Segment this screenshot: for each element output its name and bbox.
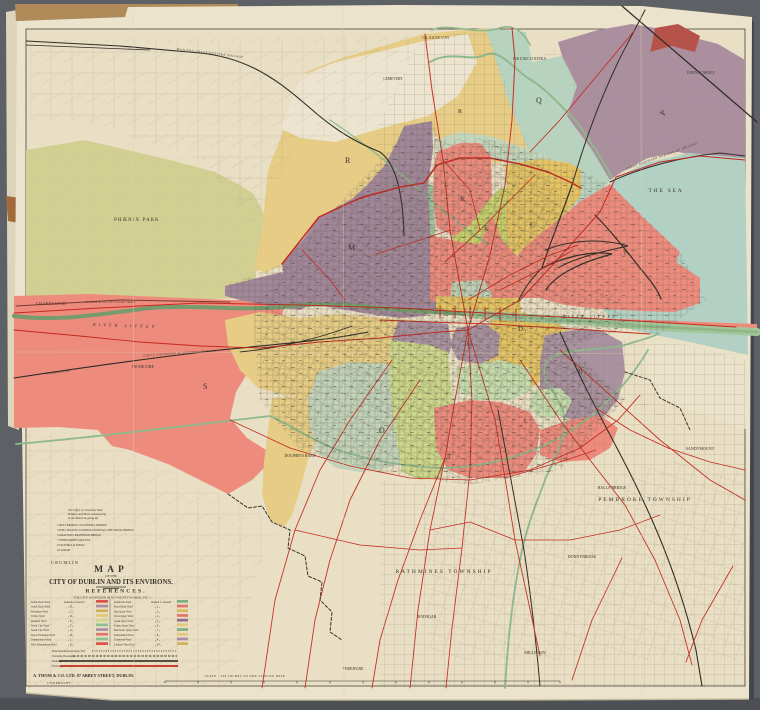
svg-text:Kilmainham Ward: Kilmainham Ward	[114, 634, 134, 637]
svg-text:Ushers Quay Ward: Ushers Quay Ward	[114, 625, 135, 628]
svg-text:„ 4 „: „ 4 „	[155, 615, 161, 618]
svg-text:7 WHITWORTH 8 QUE: 7 WHITWORTH 8 QUEENS	[57, 539, 91, 542]
svg-text:DUBLIN & LUCAN STEAM TRAM: DUBLIN & LUCAN STEAM TRAM	[84, 301, 135, 304]
svg-text:Township Boundaries: Township Boundaries	[52, 655, 75, 658]
svg-text:„ H „: „ H „	[68, 634, 74, 637]
svg-text:MILLTOWN: MILLTOWN	[524, 650, 545, 655]
svg-text:Fitzwilliam Ward: Fitzwilliam Ward	[114, 606, 133, 609]
svg-text:SCALE - SIX INCHES TO ONE: SCALE - SIX INCHES TO ONE STATUTE MILE	[205, 674, 286, 678]
svg-text:CEMETERY: CEMETERY	[383, 77, 403, 81]
svg-text:„ F „: „ F „	[68, 625, 74, 628]
svg-text:R: R	[458, 109, 462, 115]
svg-text:Royal Exchange Ward: Royal Exchange Ward	[31, 634, 56, 637]
svg-text:R: R	[345, 156, 351, 165]
svg-text:marked A coloured: marked A coloured	[64, 601, 85, 604]
svg-text:OF THE: OF THE	[105, 574, 117, 578]
svg-text:„ 5 „: „ 5 „	[155, 620, 161, 623]
svg-text:„ 2 „: „ 2 „	[155, 606, 161, 609]
svg-text:RATHMINES TOWNSHIP: RATHMINES TOWNSHIP	[395, 569, 492, 575]
svg-text:REFERENCES.: REFERENCES.	[85, 589, 146, 595]
svg-text:THE SEA: THE SEA	[648, 188, 683, 194]
svg-text:TERENURE: TERENURE	[343, 666, 364, 671]
svg-text:„ D „: „ D „	[68, 615, 74, 618]
svg-text:CITY OF DUBLIN AND ITS ENVIRON: CITY OF DUBLIN AND ITS ENVIRONS.	[49, 579, 173, 586]
svg-text:A. THOM & CO. LTD. 87 ABBEY ST: A. THOM & CO. LTD. 87 ABBEY STREET, DUBL…	[33, 673, 134, 678]
svg-text:1 BUTT BRIDGE 2 O'C: 1 BUTT BRIDGE 2 O'CONNELL BRIDGE	[57, 524, 107, 527]
svg-text:B: B	[578, 368, 583, 376]
svg-text:„ I „: „ I „	[68, 639, 73, 642]
svg-text:Main Residential portion (Viz): Main Residential portion (Viz)	[52, 650, 85, 653]
svg-text:PEMBROKE TOWNSHIP: PEMBROKE TOWNSHIP	[598, 497, 692, 503]
svg-text:North Dock Ward: North Dock Ward	[31, 601, 51, 604]
svg-text:Merchants Quay Ward: Merchants Quay Ward	[114, 629, 139, 632]
svg-text:GLASNEVIN: GLASNEVIN	[422, 35, 449, 40]
svg-text:„ B „: „ B „	[68, 606, 74, 609]
svg-text:RATHGAR: RATHGAR	[418, 614, 437, 619]
svg-text:marked 1 coloured: marked 1 coloured	[151, 601, 172, 604]
svg-text:BALLS BRIDGE: BALLS BRIDGE	[598, 485, 627, 490]
svg-text:Glasnevin Ward: Glasnevin Ward	[114, 639, 132, 642]
svg-text:SANDYMOUNT: SANDYMOUNT	[686, 446, 715, 451]
svg-text:Trinity Ward: Trinity Ward	[31, 615, 45, 618]
svg-text:S: S	[203, 382, 207, 391]
svg-text:„ E „: „ E „	[68, 620, 74, 623]
svg-text:INCHICORE: INCHICORE	[132, 364, 154, 369]
svg-text:DRUMCONDRA: DRUMCONDRA	[513, 56, 547, 61]
svg-text:RIVER LIFFEY: RIVER LIFFEY	[562, 315, 617, 319]
svg-text:Arran Quay Ward: Arran Quay Ward	[114, 620, 134, 623]
svg-text:DONNYCARNEY: DONNYCARNEY	[687, 71, 715, 75]
svg-text:PHŒNIX PARK: PHŒNIX PARK	[114, 218, 160, 223]
svg-text:DOLPHIN'S BARN: DOLPHIN'S BARN	[285, 454, 316, 458]
svg-text:Q: Q	[536, 96, 542, 105]
svg-text:„ 7 „: „ 7 „	[155, 629, 161, 632]
svg-text:at the Mouth & going up:: at the Mouth & going up:	[68, 516, 99, 520]
svg-text:M: M	[348, 243, 355, 252]
svg-text:„ K „: „ K „	[68, 643, 74, 646]
svg-text:„ 6 „: „ 6 „	[155, 625, 161, 628]
svg-text:3 WELLINGTON 4 CON: 3 WELLINGTON 4 CONNOLLY(METAL) THE METAL…	[57, 529, 134, 532]
svg-text:Rotunda Ward: Rotunda Ward	[31, 620, 47, 623]
svg-text:„ 3 „: „ 3 „	[155, 610, 161, 613]
svg-text:North City Ward: North City Ward	[31, 625, 50, 628]
svg-text:CHAPELIZOD: CHAPELIZOD	[36, 301, 66, 306]
svg-text:Clontarf Ward East: Clontarf Ward East	[114, 643, 135, 646]
svg-text:CRUMLIN: CRUMLIN	[51, 560, 79, 565]
svg-text:D: D	[518, 325, 523, 333]
svg-text:South Dock Ward: South Dock Ward	[31, 606, 51, 609]
svg-text:Wood Quay Ward: Wood Quay Ward	[114, 615, 134, 618]
svg-text:T: T	[447, 453, 452, 461]
svg-text:DONNYBROOK: DONNYBROOK	[568, 554, 597, 559]
svg-text:Drumcondra Ward: Drumcondra Ward	[31, 639, 52, 642]
svg-text:„ 8 „: „ 8 „	[155, 634, 161, 637]
svg-text:Mountjoy Ward: Mountjoy Ward	[31, 610, 49, 613]
svg-text:9 VICTORIA & KIN: 9 VICTORIA & KINGS	[57, 544, 85, 547]
svg-text:G: G	[467, 340, 472, 348]
svg-text:„ C „: „ C „	[68, 610, 74, 613]
svg-text:„ 10 „: „ 10 „	[155, 643, 162, 646]
svg-text:„ G „: „ G „	[68, 629, 74, 632]
svg-text:K: K	[460, 195, 465, 203]
svg-text:Glasnevin Ward: Glasnevin Ward	[114, 601, 132, 604]
svg-text:10 SARAH: 10 SARAH	[57, 549, 70, 552]
svg-text:E: E	[484, 224, 488, 232]
svg-text:5 GRATTAN 6 RIC: 5 GRATTAN 6 RICHMOND BRIDGE	[57, 534, 101, 537]
svg-text:O: O	[379, 426, 385, 435]
svg-text:New Kilmainham Ward: New Kilmainham Ward	[31, 643, 57, 646]
svg-text:Inns Quay Ward: Inns Quay Ward	[114, 610, 132, 613]
svg-text:„ 9 „: „ 9 „	[155, 639, 161, 642]
svg-text:L: L	[524, 419, 528, 425]
svg-text:COPYRIGHT: COPYRIGHT	[47, 681, 72, 685]
svg-text:C: C	[530, 221, 535, 229]
svg-text:South City Ward: South City Ward	[31, 629, 50, 632]
